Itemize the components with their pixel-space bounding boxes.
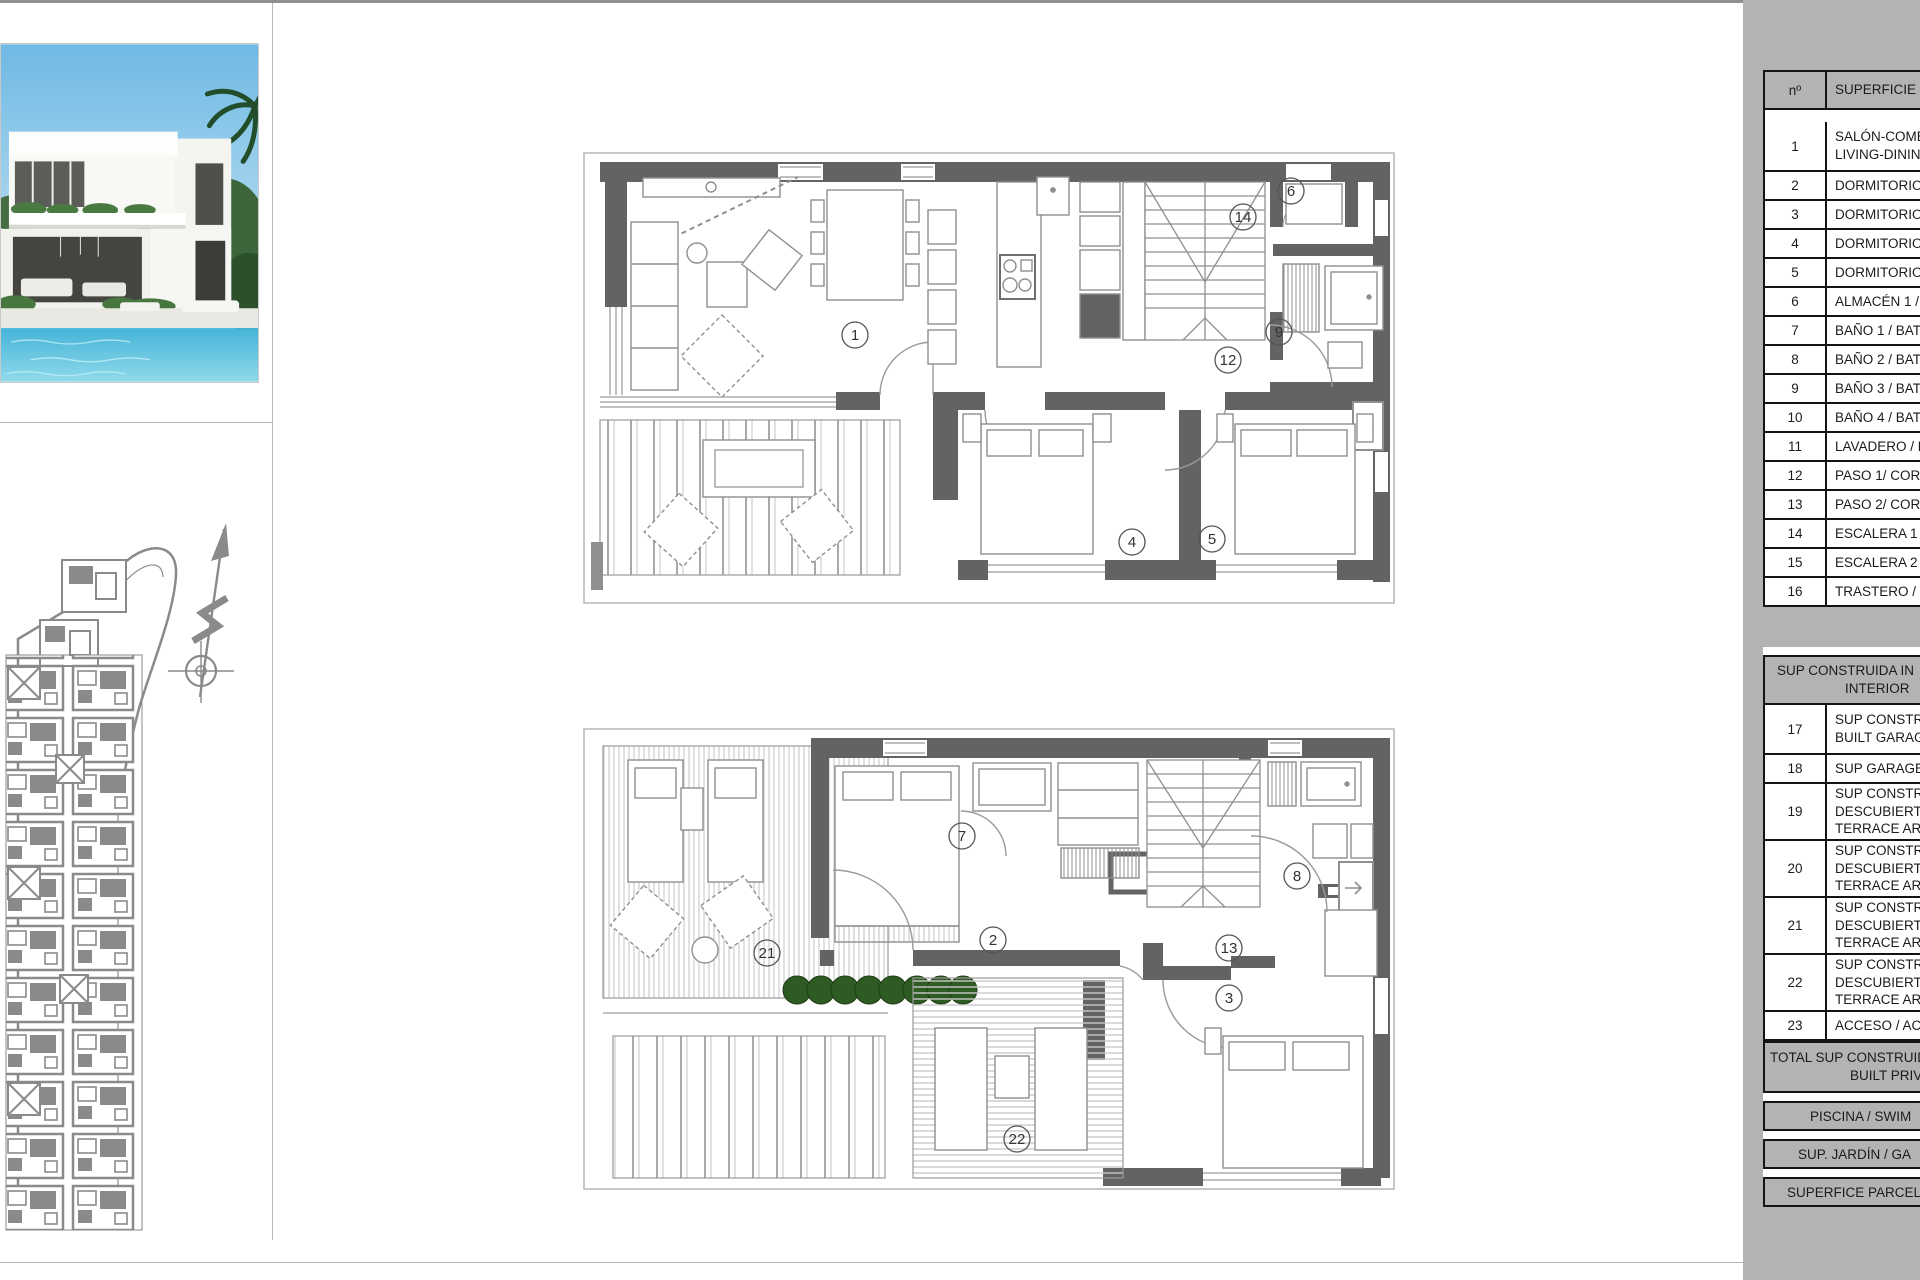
room-number-label: 22: [1009, 1131, 1026, 1148]
table-gap: [1763, 647, 1920, 655]
row-number: 11: [1765, 433, 1827, 460]
table-row: 5DORMITORIO: [1763, 259, 1920, 288]
table-row: 19SUP CONSTRUDESCUBIERTATERRACE ARE: [1763, 784, 1920, 841]
room-number-label: 6: [1287, 183, 1295, 200]
row-number: 17: [1765, 705, 1827, 753]
table-row: 3DORMITORIO: [1763, 201, 1920, 230]
row-label: DORMITORIO: [1827, 172, 1920, 199]
page-top-border: [0, 0, 1743, 3]
table-row: 22SUP CONSTRUDESCUBIERTATERRACE ARE: [1763, 955, 1920, 1012]
row-label: ESCALERA 2 /: [1827, 549, 1920, 576]
row-label: SALÓN-COMELIVING-DININ: [1827, 122, 1920, 170]
table-row: 14ESCALERA 1 /: [1763, 520, 1920, 549]
row-number: 23: [1765, 1012, 1827, 1039]
row-number: 10: [1765, 404, 1827, 431]
row-label: DORMITORIO: [1827, 230, 1920, 257]
row-label: PASO 2/ CORR: [1827, 491, 1920, 518]
photo-pool-area: [0, 295, 258, 381]
row-number: 12: [1765, 462, 1827, 489]
row-number: 7: [1765, 317, 1827, 344]
table-row: 23ACCESO / ACC: [1763, 1012, 1920, 1041]
row-label: ALMACÉN 1 /: [1827, 288, 1919, 315]
row-number: 9: [1765, 375, 1827, 402]
photo-siteplan-divider: [0, 422, 273, 423]
row-label: SUP CONSTRUDESCUBIERTATERRACE ARE: [1827, 841, 1920, 896]
floor-plan-first: 7221813322: [583, 728, 1395, 1190]
row-number: 5: [1765, 259, 1827, 286]
table-spacer: [1763, 110, 1920, 122]
row-label: PASO 1/ CORR: [1827, 462, 1920, 489]
row-label: DORMITORIO: [1827, 259, 1920, 286]
table-row: 18SUP GARAGE/: [1763, 755, 1920, 784]
row-number: 16: [1765, 578, 1827, 605]
table-gap: [1763, 607, 1920, 647]
table-row: 13PASO 2/ CORR: [1763, 491, 1920, 520]
row-number: 20: [1765, 841, 1827, 896]
table-row: 21SUP CONSTRUDESCUBIERTATERRACE ARE: [1763, 898, 1920, 955]
table-gap: [1763, 1093, 1920, 1101]
room-number-label: 14: [1235, 209, 1252, 226]
pergola: [603, 1013, 888, 1178]
sidebar-divider: [272, 0, 273, 1240]
north-arrow-icon: [168, 523, 234, 703]
total-row: TOTAL SUP CONSTRUIDABUILT PRIVA: [1763, 1041, 1920, 1093]
table-row: 8BAÑO 2 / BATH: [1763, 346, 1920, 375]
table-row: 17SUP CONSTRUBUILT GARAG: [1763, 705, 1920, 755]
area-table-panel: nºSUPERFICIE Ú1SALÓN-COMELIVING-DININ2DO…: [1743, 0, 1920, 1280]
row-label: BAÑO 4 / BATH: [1827, 404, 1920, 431]
row-number: 14: [1765, 520, 1827, 547]
row-label: TRASTERO / S: [1827, 578, 1920, 605]
row-number: 3: [1765, 201, 1827, 228]
row-label: SUPERFICIE Ú: [1827, 72, 1920, 108]
table-row: 7BAÑO 1 / BATH: [1763, 317, 1920, 346]
table-row: 12PASO 1/ CORR: [1763, 462, 1920, 491]
row-label: SUP CONSTRUDESCUBIERTATERRACE ARE: [1827, 955, 1920, 1010]
table-row: 1SALÓN-COMELIVING-DININ: [1763, 122, 1920, 172]
page-bottom-border: [0, 1262, 1743, 1263]
room-number-label: 2: [989, 932, 997, 949]
bedroom2-furniture: [835, 766, 959, 942]
room-number-label: 3: [1225, 990, 1233, 1007]
table-row: 4DORMITORIO: [1763, 230, 1920, 259]
row-label: BAÑO 2 / BATH: [1827, 346, 1920, 373]
stairs: [1147, 760, 1260, 907]
table-row: 9BAÑO 3 / BATH: [1763, 375, 1920, 404]
row-number: nº: [1765, 72, 1827, 108]
site-units-strip: [6, 655, 142, 1230]
room-number-label: 8: [1293, 868, 1301, 885]
row-number: 13: [1765, 491, 1827, 518]
row-label: SUP CONSTRUDESCUBIERTATERRACE ARE: [1827, 898, 1920, 953]
summary-band: SUPERFICE PARCEL: [1763, 1177, 1920, 1207]
plan-sheet-page: 114691245: [0, 0, 1920, 1280]
photo-villa-building: [1, 132, 231, 311]
row-label: BAÑO 3 / BATH: [1827, 375, 1920, 402]
row-label: DORMITORIO: [1827, 201, 1920, 228]
row-number: 15: [1765, 549, 1827, 576]
row-label: SUP CONSTRUDESCUBIERTATERRACE ARE: [1827, 784, 1920, 839]
terrace22: [913, 978, 1123, 1178]
floor-plan-ground: 114691245: [583, 152, 1395, 604]
room-number-label: 21: [759, 945, 776, 962]
room-number-label: 4: [1128, 534, 1136, 551]
row-label: SUP CONSTRUBUILT GARAG: [1827, 705, 1920, 753]
bedroom3-furniture: [1205, 1028, 1363, 1168]
table-row: 15ESCALERA 2 /: [1763, 549, 1920, 578]
stairs: [1145, 182, 1265, 340]
table-row: 6ALMACÉN 1 /: [1763, 288, 1920, 317]
table-gap: [1763, 1169, 1920, 1177]
row-number: 19: [1765, 784, 1827, 839]
row-number: 22: [1765, 955, 1827, 1010]
area-table: nºSUPERFICIE Ú1SALÓN-COMELIVING-DININ2DO…: [1763, 70, 1920, 1207]
row-number: 8: [1765, 346, 1827, 373]
table-gap: [1763, 1131, 1920, 1139]
room-number-label: 13: [1221, 940, 1238, 957]
row-label: SUP GARAGE/: [1827, 755, 1920, 782]
row-number: 1: [1765, 122, 1827, 170]
row-number: 21: [1765, 898, 1827, 953]
room-number-label: 9: [1275, 324, 1283, 341]
summary-band: PISCINA / SWIM: [1763, 1101, 1920, 1131]
site-plan: [0, 455, 273, 1235]
villa-photo: [0, 43, 259, 383]
row-label: ACCESO / ACC: [1827, 1012, 1920, 1039]
summary-band: SUP. JARDÍN / GA: [1763, 1139, 1920, 1169]
row-number: 6: [1765, 288, 1827, 315]
row-number: 4: [1765, 230, 1827, 257]
row-number: 18: [1765, 755, 1827, 782]
row-label: ESCALERA 1 /: [1827, 520, 1920, 547]
row-label: BAÑO 1 / BATH: [1827, 317, 1920, 344]
table-row: 20SUP CONSTRUDESCUBIERTATERRACE ARE: [1763, 841, 1920, 898]
table-row: 16TRASTERO / S: [1763, 578, 1920, 607]
table-row: 10BAÑO 4 / BATH: [1763, 404, 1920, 433]
row-number: 2: [1765, 172, 1827, 199]
table-row: 11LAVADERO / L: [1763, 433, 1920, 462]
built-area-header: SUP CONSTRUIDA ININTERIOR: [1763, 655, 1920, 705]
room-number-label: 12: [1220, 352, 1237, 369]
table-header-row: nºSUPERFICIE Ú: [1763, 70, 1920, 110]
terrace-deck: [591, 420, 900, 590]
room-number-label: 5: [1208, 531, 1216, 548]
table-row: 2DORMITORIO: [1763, 172, 1920, 201]
row-label: LAVADERO / L: [1827, 433, 1920, 460]
room-number-label: 1: [851, 327, 859, 344]
room-number-label: 7: [958, 828, 966, 845]
